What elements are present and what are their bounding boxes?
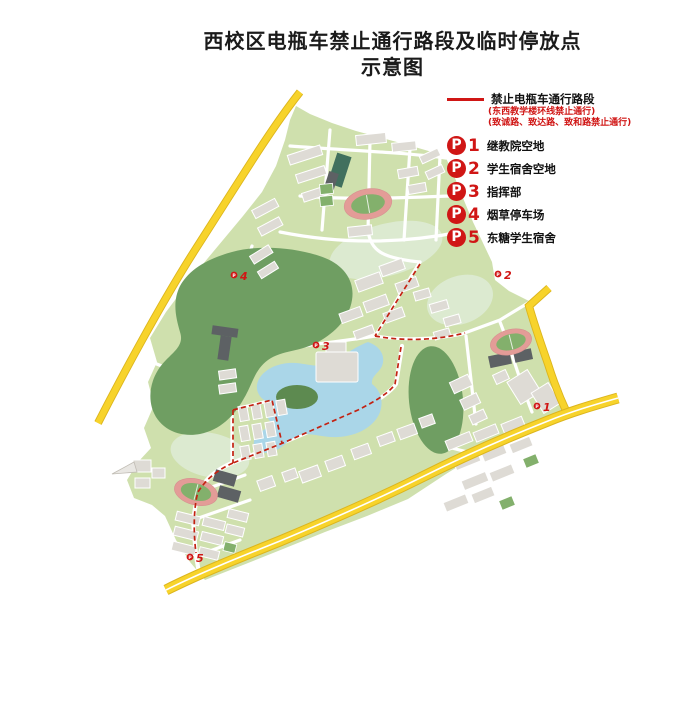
- legend-route-row: 禁止电瓶车通行路段: [447, 91, 673, 107]
- prohibited-route-label: 禁止电瓶车通行路段: [491, 91, 595, 107]
- parking-point-label: 继教院空地: [487, 138, 545, 154]
- parking-badge-icon: P: [447, 205, 466, 224]
- parking-point-label: 学生宿舍空地: [487, 161, 556, 177]
- legend-item-p5: P 5 东糖学生宿舍: [447, 226, 673, 249]
- parking-point-label: 烟草停车场: [487, 207, 545, 223]
- parking-badge-icon: P: [447, 159, 466, 178]
- parking-point-number: 4: [468, 205, 480, 225]
- parking-point-label: 指挥部: [487, 184, 522, 200]
- page-title-line1: 西校区电瓶车禁止通行路段及临时停放点: [105, 28, 677, 54]
- west-gate-monument: [112, 462, 137, 474]
- parking-point-number: 1: [468, 136, 480, 156]
- map-marker-2: P 2: [495, 269, 512, 282]
- parking-point-label: 东糖学生宿舍: [487, 230, 556, 246]
- parking-badge-icon: P: [447, 182, 466, 201]
- svg-text:3: 3: [322, 340, 330, 353]
- parking-point-list: P 1 继教院空地 P 2 学生宿舍空地 P 3 指挥部 P 4 烟草停车场 P: [447, 134, 673, 249]
- map-legend: 禁止电瓶车通行路段 (东西教学楼环线禁止通行) (致诚路、致达路、致和路禁止通行…: [447, 91, 673, 249]
- map-marker-5: P 5: [187, 552, 204, 565]
- parking-point-number: 2: [468, 159, 480, 179]
- page-title-line2: 示意图: [105, 54, 677, 80]
- parking-point-number: 5: [468, 228, 480, 248]
- prohibited-route-notes: (东西教学楼环线禁止通行) (致诚路、致达路、致和路禁止通行): [488, 107, 673, 129]
- schematic-page: P 1 P 2 P 3 P 4 P 5: [0, 0, 677, 710]
- legend-item-p4: P 4 烟草停车场: [447, 203, 673, 226]
- parking-badge-icon: P: [447, 228, 466, 247]
- prohibited-route-note-1: (东西教学楼环线禁止通行): [488, 107, 673, 118]
- legend-item-p2: P 2 学生宿舍空地: [447, 157, 673, 180]
- parking-point-number: 3: [468, 182, 480, 202]
- legend-item-p1: P 1 继教院空地: [447, 134, 673, 157]
- svg-text:1: 1: [543, 401, 551, 414]
- svg-text:5: 5: [196, 552, 204, 565]
- svg-text:2: 2: [504, 269, 512, 282]
- parking-badge-icon: P: [447, 136, 466, 155]
- legend-item-p3: P 3 指挥部: [447, 180, 673, 203]
- prohibited-route-line-swatch: [447, 98, 484, 101]
- page-title: 西校区电瓶车禁止通行路段及临时停放点 示意图: [105, 28, 677, 80]
- prohibited-route-note-2: (致诚路、致达路、致和路禁止通行): [488, 118, 673, 129]
- svg-text:4: 4: [239, 270, 248, 283]
